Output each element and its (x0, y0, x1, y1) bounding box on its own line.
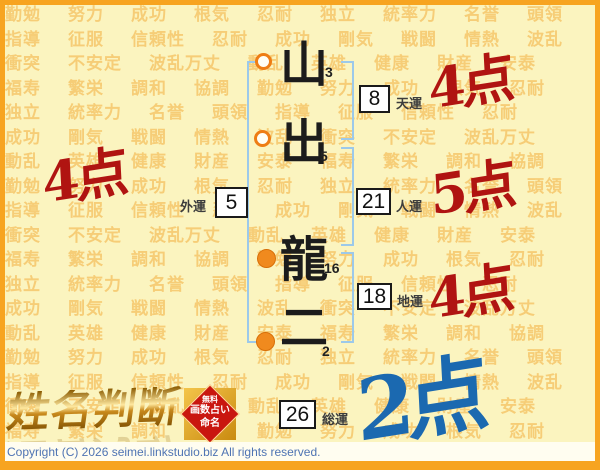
site-logo[interactable]: 姓名判断 (5, 386, 184, 434)
pattern-word: 成功 (5, 126, 41, 151)
pattern-word: 福寿 (5, 77, 41, 102)
pattern-word: 不安定 (68, 224, 122, 249)
pattern-word: 忍耐 (509, 248, 545, 273)
pattern-word: 信頼性 (131, 28, 185, 53)
total-luck-value-box: 26 (279, 400, 316, 429)
pattern-word: 波乱 (527, 28, 563, 53)
pattern-word: 忍耐 (509, 77, 545, 102)
pattern-word: 繁栄 (68, 248, 104, 273)
pattern-word: 名誉 (149, 273, 185, 298)
pattern-word: 戦闘 (131, 297, 167, 322)
pattern-word: 安泰 (500, 395, 536, 420)
stroke-count: 2 (322, 343, 330, 359)
pattern-word: 成功 (131, 3, 167, 28)
pattern-word: 頭領 (527, 346, 563, 371)
pattern-word: 勤勉 (5, 175, 41, 200)
copyright-strip: Copyright (C) 2026 seimei.linkstudio.biz… (0, 442, 600, 461)
pattern-word: 忍耐 (257, 3, 293, 28)
pattern-word: 根気 (194, 3, 230, 28)
pattern-word: 健康 (374, 52, 410, 77)
pattern-word: 波乱万丈 (464, 126, 536, 151)
pattern-word: 努力 (68, 3, 104, 28)
seal-line: 無料 (184, 395, 236, 405)
pattern-word: 剛気 (338, 28, 374, 53)
pattern-word: 戦闘 (131, 126, 167, 151)
pattern-word: 頭領 (212, 273, 248, 298)
pattern-word: 忍耐 (509, 420, 545, 445)
pattern-word: 調和 (131, 248, 167, 273)
pattern-word: 統率力 (68, 101, 122, 126)
pattern-word: 勤勉 (5, 3, 41, 28)
pattern-word: 財産 (194, 150, 230, 175)
pattern-word: 繁栄 (68, 77, 104, 102)
name-character: 山 (276, 42, 332, 90)
pattern-word: 英雄 (68, 322, 104, 347)
pattern-word: 衝突 (5, 52, 41, 77)
pattern-word: 指導 (5, 199, 41, 224)
pattern-word: 福寿 (5, 248, 41, 273)
pattern-word: 成功 (275, 371, 311, 396)
stroke-count: 16 (324, 260, 340, 276)
pattern-word: 情熱 (194, 126, 230, 151)
pattern-word: 波乱 (527, 199, 563, 224)
person-luck-label: 人運 (396, 196, 422, 215)
pattern-word: 協調 (194, 248, 230, 273)
pattern-word: 健康 (374, 224, 410, 249)
pattern-word: 動乱 (5, 150, 41, 175)
person-luck-bracket (341, 147, 354, 246)
surname-char-ring-icon (254, 130, 271, 147)
pattern-word: 健康 (131, 150, 167, 175)
pattern-word: 安泰 (500, 224, 536, 249)
pattern-word: 信頼性 (131, 199, 185, 224)
earth-luck-value-box: 18 (357, 283, 392, 310)
pattern-word: 独立 (5, 273, 41, 298)
pattern-word: 成功 (275, 199, 311, 224)
pattern-word: 勤勉 (5, 346, 41, 371)
pattern-word: 征服 (68, 28, 104, 53)
pattern-word: 動乱 (5, 322, 41, 347)
pattern-word: 不安定 (68, 52, 122, 77)
pattern-word: 成功 (383, 248, 419, 273)
pattern-word: 繁栄 (383, 150, 419, 175)
pattern-word: 頭領 (527, 175, 563, 200)
pattern-word: 努力 (68, 346, 104, 371)
person-luck-value-box: 21 (356, 188, 391, 215)
outer-luck-bracket (247, 61, 261, 343)
pattern-word: 調和 (131, 77, 167, 102)
pattern-word: 波乱 (527, 371, 563, 396)
page: 勤勉努力成功根気忍耐独立統率力名誉頭領指導征服信頼性忍耐成功剛気戦闘情熱波乱衝突… (0, 0, 600, 470)
pattern-word: 健康 (131, 322, 167, 347)
outer-luck-score: 4点 (41, 143, 126, 210)
frame-border-left (0, 0, 5, 470)
pattern-word: 独立 (5, 101, 41, 126)
free-naming-seal[interactable]: 無料 画数占い 命名 (184, 388, 236, 440)
pattern-word: 財産 (437, 224, 473, 249)
pattern-word: 戦闘 (401, 28, 437, 53)
outer-luck-value-box: 5 (215, 187, 248, 218)
pattern-word: 忍耐 (257, 175, 293, 200)
pattern-word: 忍耐 (212, 28, 248, 53)
earth-luck-bracket (341, 252, 354, 343)
pattern-word: 頭領 (527, 3, 563, 28)
pattern-word: 名誉 (464, 3, 500, 28)
pattern-word: 波乱万丈 (149, 52, 221, 77)
pattern-word: 統率力 (68, 273, 122, 298)
seal-line: 命名 (184, 418, 236, 431)
heaven-luck-score: 4点 (427, 49, 512, 116)
stroke-count: 5 (320, 148, 328, 164)
pattern-word: 情熱 (194, 297, 230, 322)
given-char-dot-icon (257, 249, 276, 268)
pattern-word: 頭領 (212, 101, 248, 126)
heaven-luck-bracket (341, 61, 354, 140)
total-luck-label: 総運 (322, 409, 348, 428)
earth-luck-label: 地運 (397, 291, 423, 310)
earth-luck-score: 4点 (427, 259, 512, 326)
pattern-word: 独立 (320, 3, 356, 28)
pattern-word: 衝突 (5, 224, 41, 249)
pattern-word: 不安定 (383, 126, 437, 151)
pattern-word: 協調 (194, 77, 230, 102)
heaven-luck-value-box: 8 (359, 85, 390, 113)
pattern-word: 成功 (5, 297, 41, 322)
heaven-luck-label: 天運 (396, 93, 422, 112)
pattern-word: 成功 (131, 175, 167, 200)
copyright-text: Copyright (C) 2026 seimei.linkstudio.biz… (7, 445, 320, 459)
pattern-word: 根気 (194, 346, 230, 371)
stroke-count: 3 (325, 64, 333, 80)
pattern-word: 成功 (131, 346, 167, 371)
outer-luck-label: 外運 (180, 196, 206, 215)
pattern-word: 統率力 (383, 3, 437, 28)
pattern-word: 繁栄 (383, 322, 419, 347)
total-luck-score: 2点 (355, 350, 484, 454)
pattern-word: 協調 (509, 150, 545, 175)
pattern-word: 剛気 (68, 297, 104, 322)
seal-line: 画数占い (184, 405, 236, 418)
pattern-word: 協調 (509, 322, 545, 347)
frame-border-top (0, 0, 600, 5)
pattern-word: 財産 (194, 322, 230, 347)
seal-text: 無料 画数占い 命名 (184, 395, 236, 430)
frame-border-bottom (0, 461, 600, 470)
frame-border-right (595, 0, 600, 470)
person-luck-score: 5点 (429, 155, 514, 222)
pattern-word: 波乱万丈 (149, 224, 221, 249)
surname-char-ring-icon (255, 53, 272, 70)
pattern-word: 名誉 (149, 101, 185, 126)
pattern-word: 指導 (5, 28, 41, 53)
given-char-dot-icon (256, 332, 275, 351)
